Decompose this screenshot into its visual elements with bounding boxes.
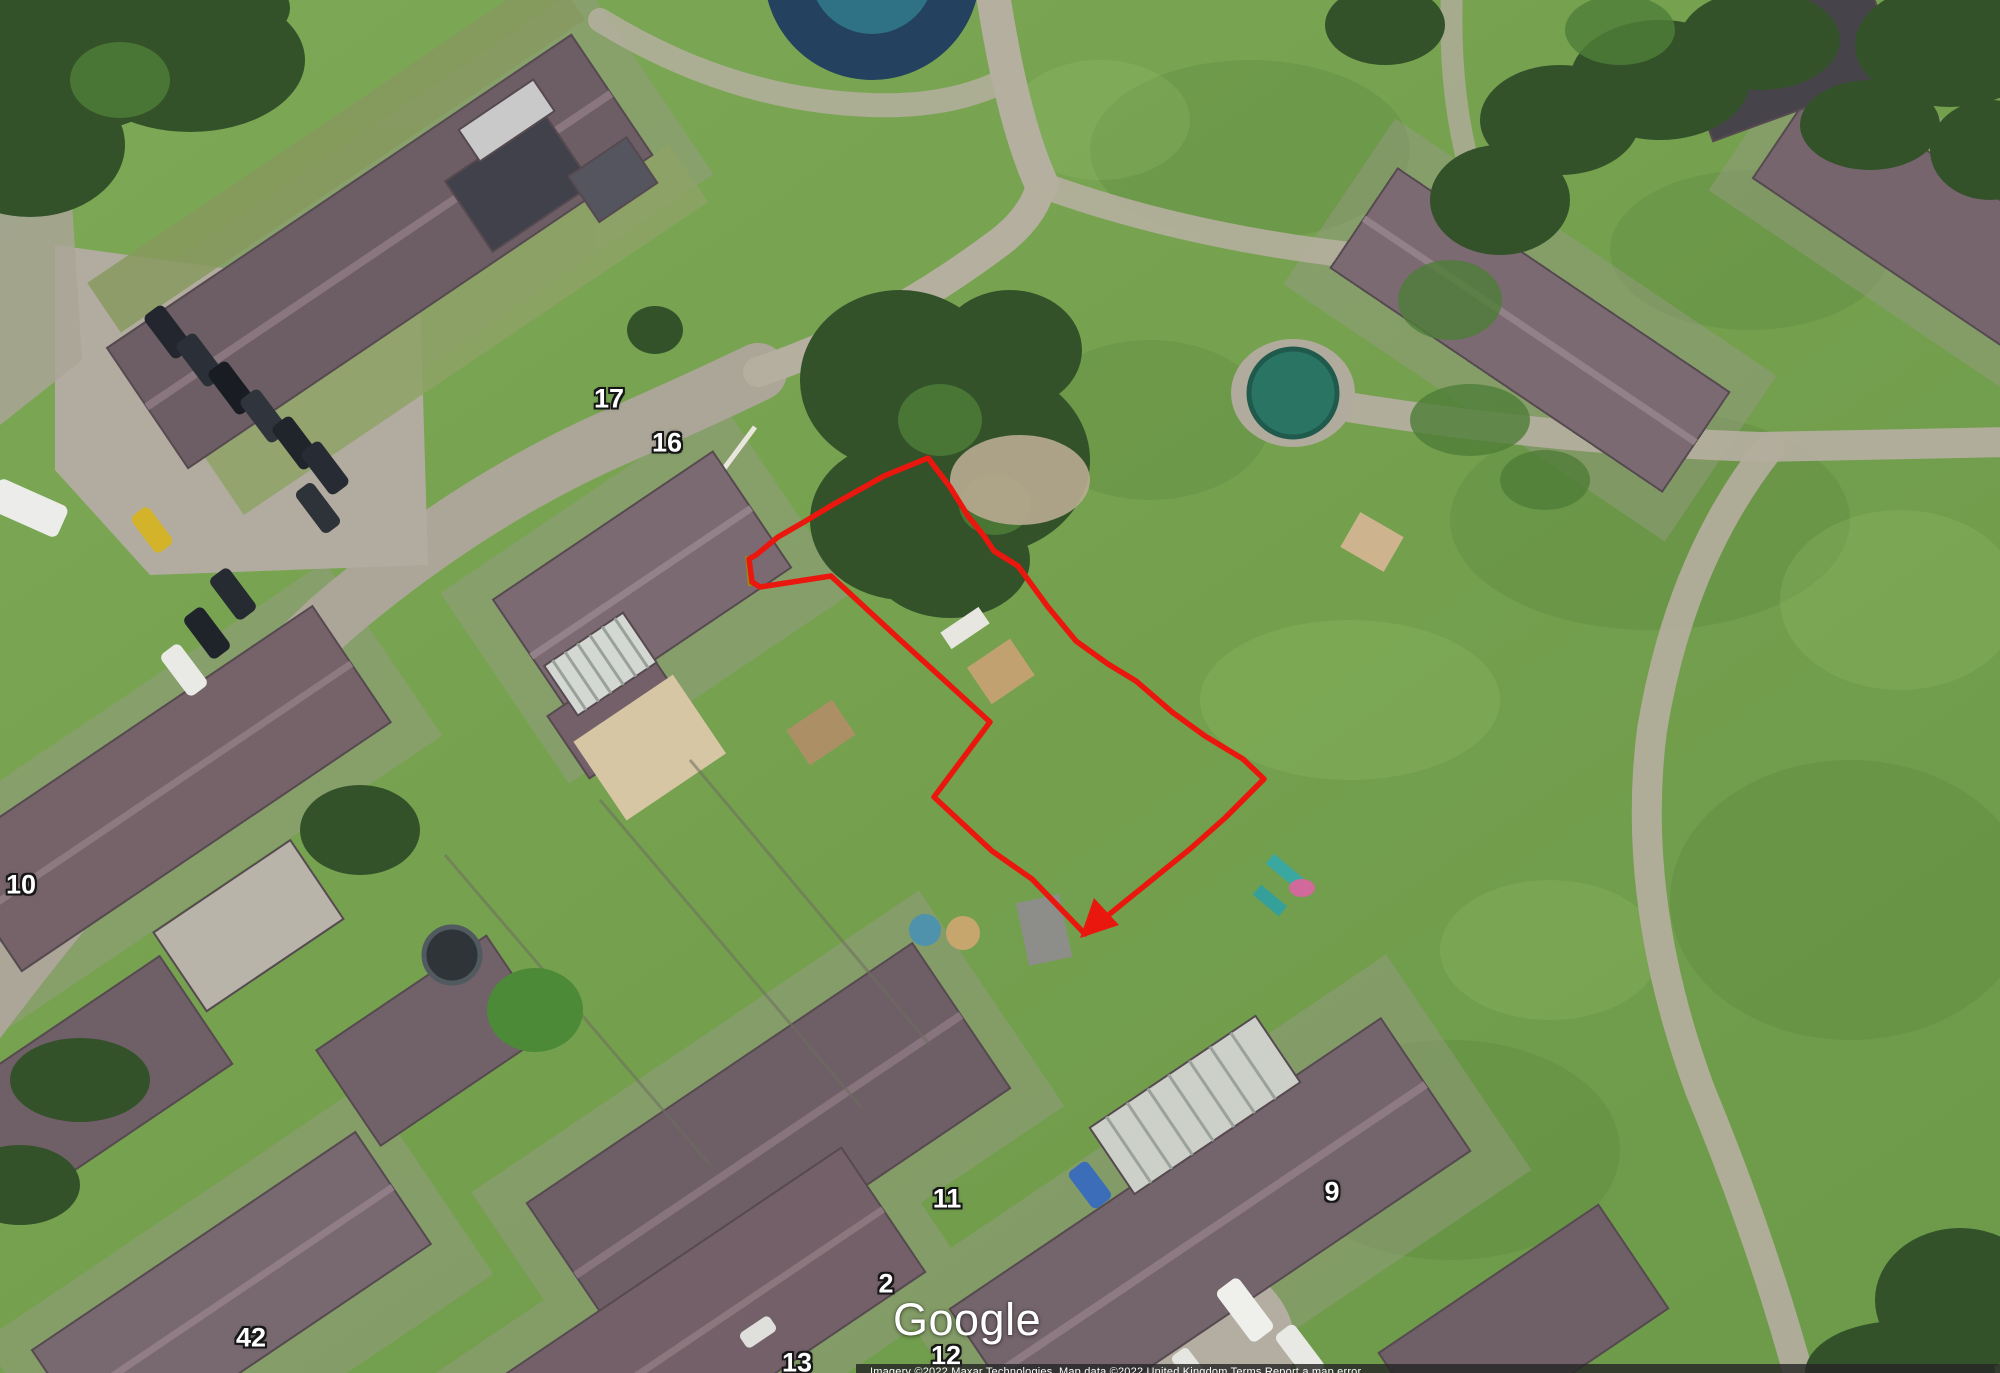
boundary-arrowhead-icon: [1080, 898, 1119, 938]
map-attribution-bar: Imagery ©2022 Maxar Technologies, Map da…: [856, 1364, 2000, 1373]
map-attribution-text: Imagery ©2022 Maxar Technologies, Map da…: [870, 1366, 1361, 1373]
google-watermark: Google: [893, 1294, 1041, 1346]
boundary-outline: [749, 458, 1264, 934]
map-viewport[interactable]: 1716101192421312 Google Imagery ©2022 Ma…: [0, 0, 2000, 1373]
property-boundary-annotation: [0, 0, 2000, 1373]
